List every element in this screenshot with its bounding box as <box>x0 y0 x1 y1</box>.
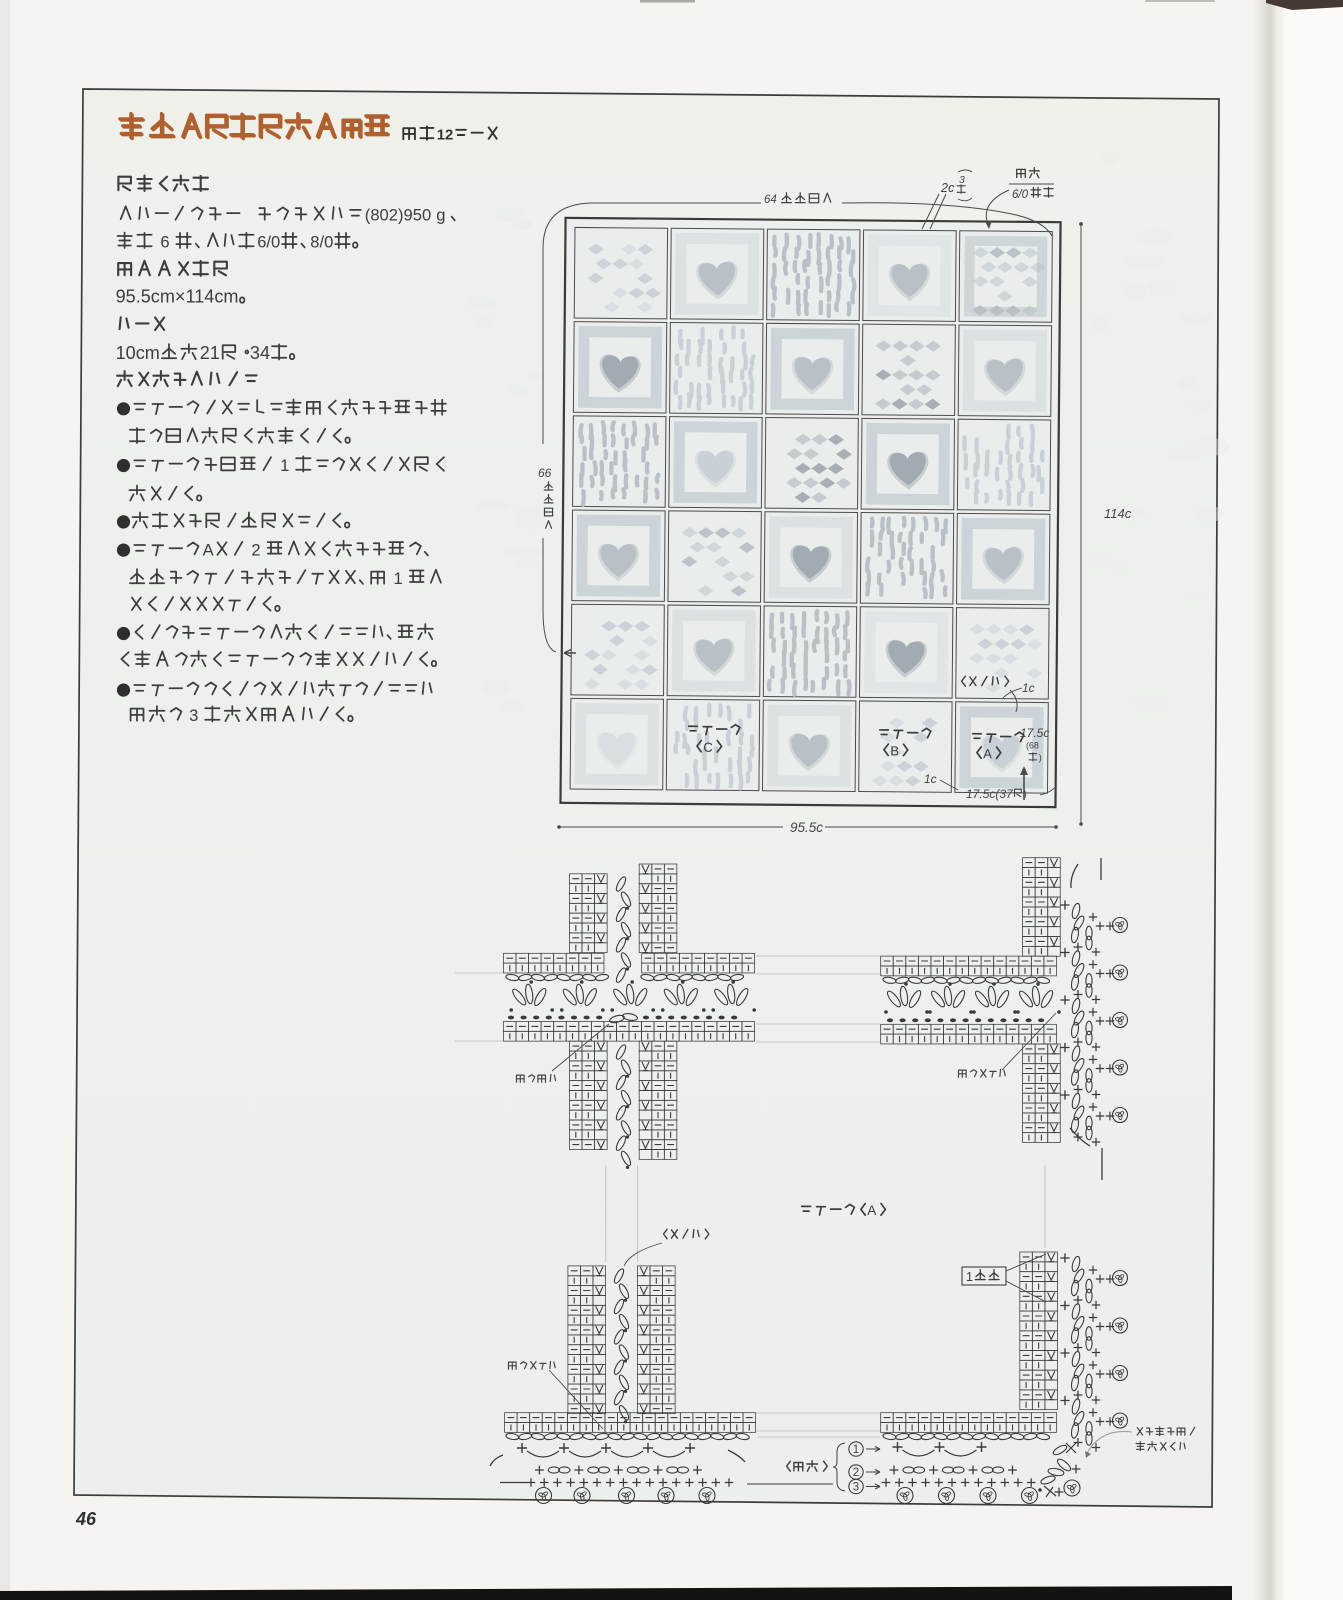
svg-text:6/0: 6/0 <box>257 233 280 252</box>
svg-text:3: 3 <box>189 706 198 725</box>
svg-text:6/0: 6/0 <box>1012 189 1029 201</box>
svg-text:10cm: 10cm <box>116 343 160 363</box>
svg-text:17.5c: 17.5c <box>1020 726 1049 740</box>
svg-text:95.5c: 95.5c <box>790 820 823 835</box>
svg-text:66: 66 <box>538 466 552 480</box>
svg-text:A: A <box>983 746 992 761</box>
svg-text:1: 1 <box>853 1444 859 1456</box>
svg-text:34: 34 <box>250 343 270 363</box>
svg-text:46: 46 <box>75 1509 97 1529</box>
svg-text:1c: 1c <box>924 772 937 786</box>
svg-text:8/0: 8/0 <box>310 233 333 252</box>
svg-text:g: g <box>436 206 445 225</box>
svg-text:2: 2 <box>251 541 260 560</box>
svg-text:95.5cm×114cm: 95.5cm×114cm <box>116 287 239 307</box>
svg-text:3: 3 <box>853 1482 859 1494</box>
svg-text:12: 12 <box>437 127 454 143</box>
svg-text:A: A <box>203 541 215 560</box>
svg-text:): ) <box>1024 789 1027 799</box>
svg-text:2c: 2c <box>940 181 955 195</box>
svg-text:C: C <box>703 740 713 755</box>
svg-text:2: 2 <box>853 1467 859 1479</box>
svg-text:A: A <box>867 1203 877 1218</box>
svg-text:1: 1 <box>280 456 289 475</box>
svg-text:(68: (68 <box>1026 741 1039 751</box>
svg-text:64: 64 <box>764 194 777 206</box>
svg-text:1c: 1c <box>1022 681 1035 695</box>
svg-text:21: 21 <box>200 343 220 363</box>
svg-text:114c: 114c <box>1104 506 1132 521</box>
svg-text:1: 1 <box>394 569 403 588</box>
svg-text:B: B <box>890 743 899 758</box>
svg-text:(802)950: (802)950 <box>365 206 431 225</box>
svg-text:1: 1 <box>966 1270 973 1284</box>
svg-text:6: 6 <box>160 233 169 252</box>
svg-text:17.5c(37: 17.5c(37 <box>966 787 1014 801</box>
svg-text:): ) <box>1039 753 1042 763</box>
svg-text:3: 3 <box>959 174 965 186</box>
